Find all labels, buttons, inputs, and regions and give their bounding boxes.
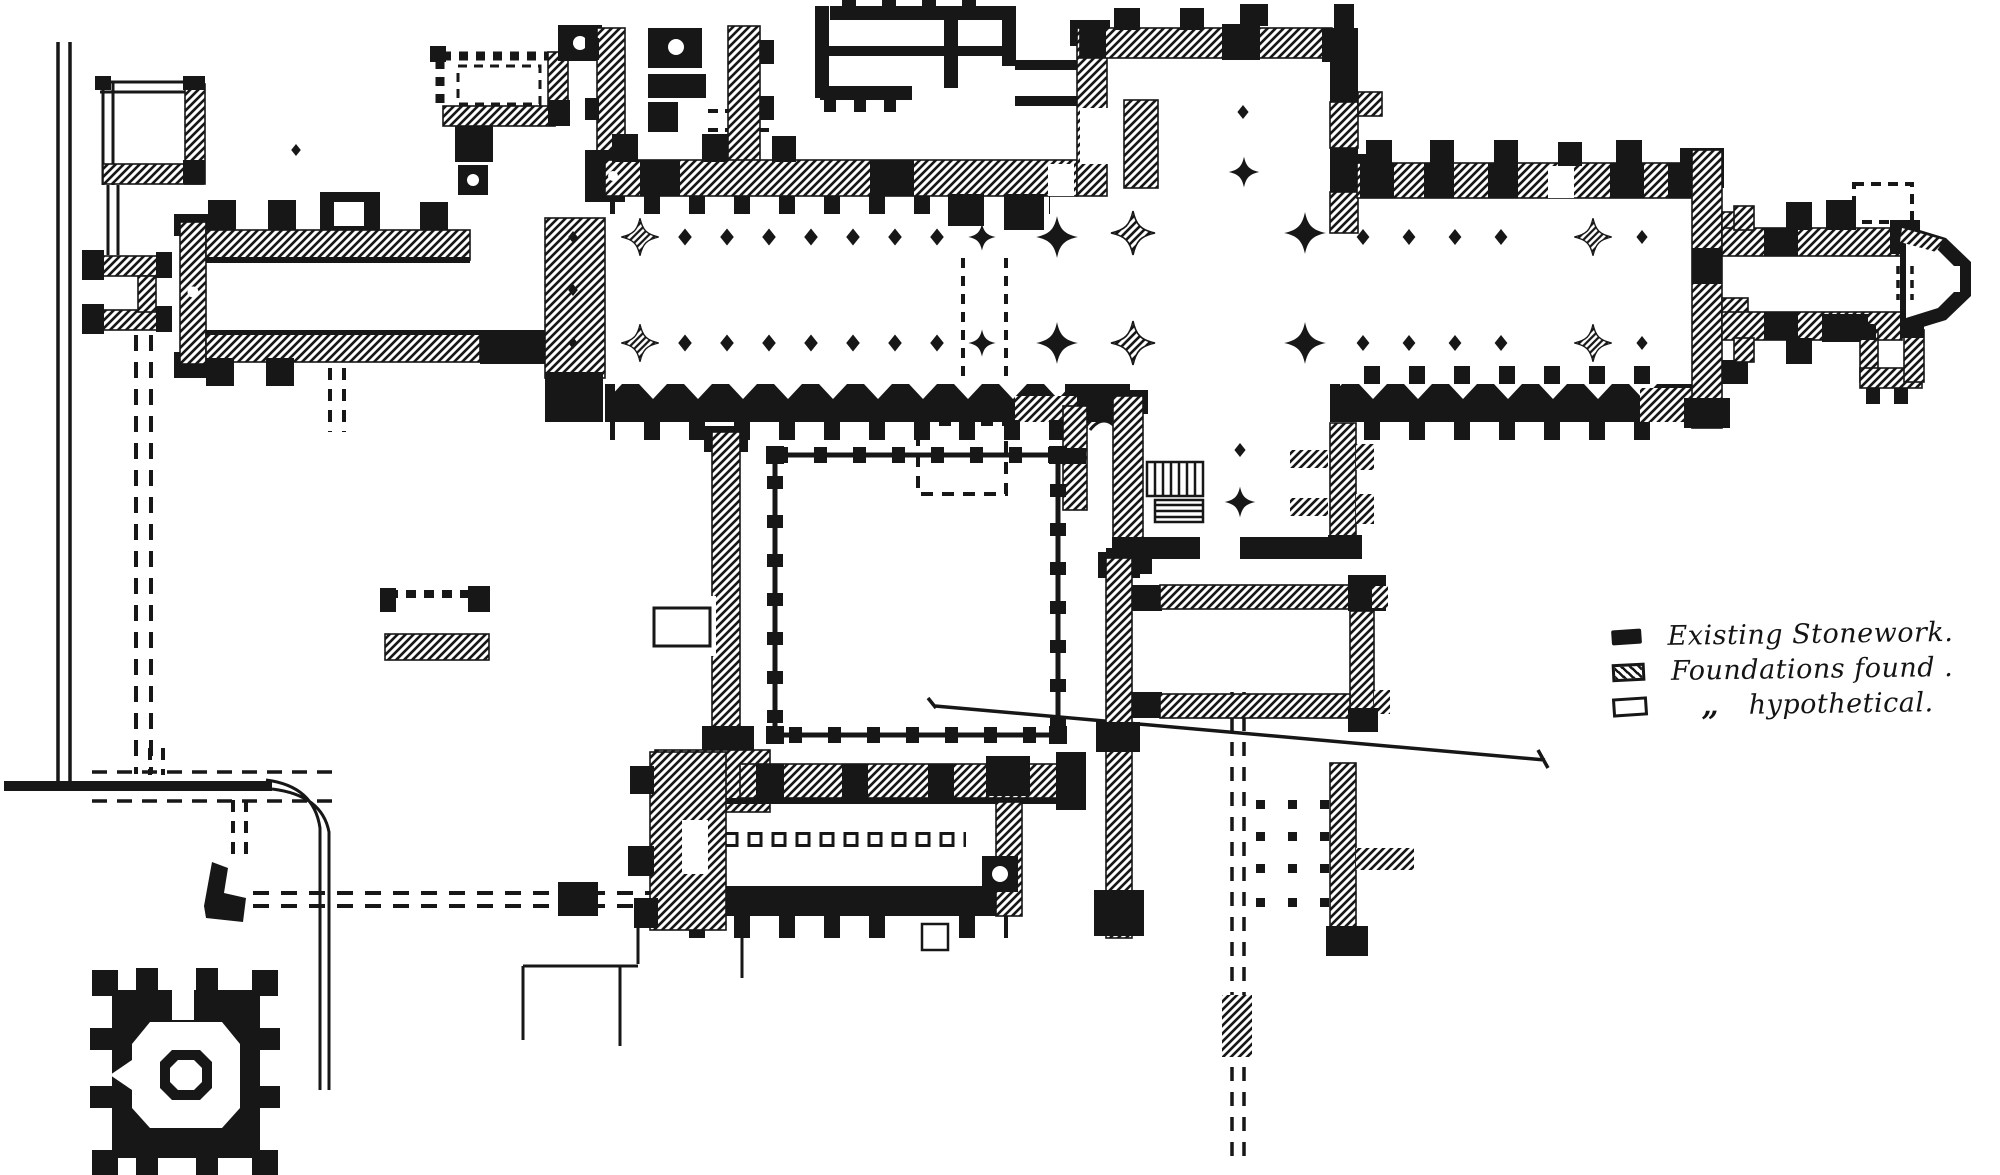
west-church [174, 108, 568, 386]
north-transept [1070, 4, 1382, 233]
legend-row-existing-stonework: Existing Stonework. [1611, 614, 1999, 654]
choir [1330, 140, 1748, 440]
crossing-piers [1111, 211, 1326, 365]
northwest-chapel [430, 46, 570, 126]
legend-label: Foundations found . [1671, 652, 1954, 687]
cloister-garth [775, 455, 1058, 735]
day-stairs [1147, 462, 1203, 522]
legend: Existing Stonework. Foundations found . … [1611, 614, 2000, 724]
hatched-swatch-icon [1612, 662, 1646, 682]
cloister-garth-tabs [775, 455, 1058, 735]
presbytery [1722, 184, 1971, 404]
legend-row-hypothetical: „ hypothetical. [1612, 684, 2000, 724]
abbey-plan-figure: Existing Stonework. Foundations found . … [0, 0, 2000, 1175]
north-chapels [815, 0, 1079, 112]
kitchen [558, 752, 726, 930]
outer-court-gateway [380, 586, 490, 660]
legend-label: hypothetical. [1749, 687, 1934, 721]
nave-piers [568, 216, 1078, 364]
dorter-undercroft [1256, 763, 1414, 956]
solid-swatch-icon [1611, 629, 1642, 646]
ditto-mark: „ [1701, 688, 1719, 723]
nave [545, 134, 1130, 494]
outline-swatch-icon [1612, 696, 1648, 717]
west-parlour [640, 596, 716, 656]
abbey-floor-plan [0, 0, 2000, 1175]
bell-tower [90, 968, 280, 1175]
legend-row-foundations-found: Foundations found . [1612, 649, 2000, 689]
legend-label: Existing Stonework. [1667, 617, 1953, 652]
